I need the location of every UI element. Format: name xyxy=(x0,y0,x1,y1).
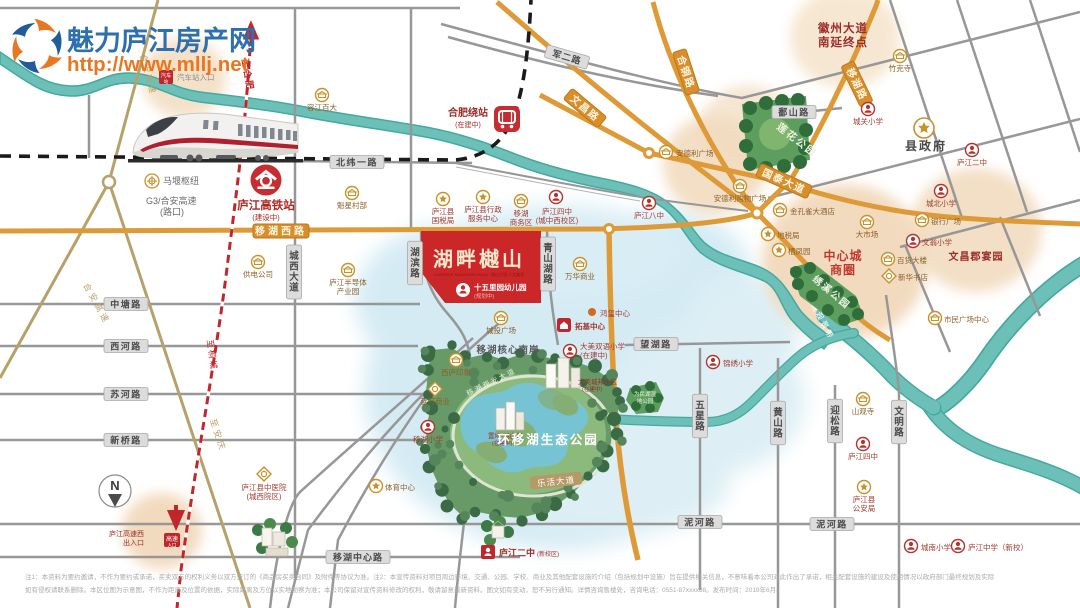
svg-text:(城中西校区): (城中西校区) xyxy=(536,215,579,225)
svg-text:城西大道: 城西大道 xyxy=(289,250,299,294)
svg-text:大市场: 大市场 xyxy=(856,229,879,239)
svg-text:大美双语小学: 大美双语小学 xyxy=(580,341,625,351)
svg-text:国税局: 国税局 xyxy=(432,215,455,225)
svg-text:徽州大道: 徽州大道 xyxy=(817,21,868,35)
svg-text:望湖路: 望湖路 xyxy=(640,338,672,349)
svg-text:安德利广场: 安德利广场 xyxy=(676,148,714,158)
svg-text:为民湖湿: 为民湖湿 xyxy=(634,390,657,398)
svg-text:(规划中): (规划中) xyxy=(474,292,494,300)
svg-text:庐江四中: 庐江四中 xyxy=(848,451,878,461)
svg-text:庐江二中: 庐江二中 xyxy=(499,547,535,558)
svg-text:马堰枢纽: 马堰枢纽 xyxy=(163,175,199,186)
svg-text:金孔雀大酒店: 金孔雀大酒店 xyxy=(790,206,835,216)
svg-text:竹克寺: 竹克寺 xyxy=(889,63,912,73)
svg-text:站: 站 xyxy=(164,78,169,85)
svg-text:G3/合安高速: G3/合安高速 xyxy=(146,195,197,206)
svg-text:商圈: 商圈 xyxy=(830,262,856,277)
svg-text:庐江高速西: 庐江高速西 xyxy=(109,529,144,538)
svg-text:(在建中): (在建中) xyxy=(455,120,481,129)
svg-text:文明路: 文明路 xyxy=(893,405,904,438)
svg-text:黄山路: 黄山路 xyxy=(773,406,783,439)
svg-text:体育中心: 体育中心 xyxy=(385,482,415,492)
svg-text:庐江八中: 庐江八中 xyxy=(634,210,664,220)
svg-text:庐江半导体: 庐江半导体 xyxy=(329,277,367,287)
svg-text:湖畔樾山: 湖畔樾山 xyxy=(433,247,525,271)
svg-text:移湖中心路: 移湖中心路 xyxy=(333,551,383,562)
svg-text:产业园: 产业园 xyxy=(337,286,360,296)
svg-text:出入口: 出入口 xyxy=(123,538,144,547)
svg-text:拓基中心: 拓基中心 xyxy=(575,321,605,331)
svg-text:移湖西路: 移湖西路 xyxy=(255,225,307,238)
svg-text:环移湖生态公园: 环移湖生态公园 xyxy=(497,432,599,447)
svg-text:迎松路: 迎松路 xyxy=(830,404,840,437)
svg-text:LAKESIDE MOUNTAIN VILLA · 湖山大境: LAKESIDE MOUNTAIN VILLA · 湖山大境 人文美学 xyxy=(434,271,524,277)
svg-text:大美城邦小区: 大美城邦小区 xyxy=(578,377,618,386)
svg-text:锦绣小学: 锦绣小学 xyxy=(723,358,753,368)
svg-text:青山湖路: 青山湖路 xyxy=(543,242,553,286)
svg-text:供电公司: 供电公司 xyxy=(243,269,273,279)
svg-text:庐江县: 庐江县 xyxy=(853,494,876,504)
svg-text:(城西院区): (城西院区) xyxy=(247,491,282,501)
svg-text:蓝万商业: 蓝万商业 xyxy=(420,396,450,406)
svg-text:容江百大: 容江百大 xyxy=(307,102,337,112)
svg-text:新桥路: 新桥路 xyxy=(110,434,142,445)
svg-text:注1：本资料为要约邀请，不作为要约或承诺，买卖双方的权利义务: 注1：本资料为要约邀请，不作为要约或承诺，买卖双方的权利义务以双方签订的《商品房… xyxy=(25,572,995,581)
svg-text:地税局: 地税局 xyxy=(777,230,800,240)
svg-text:城南小学: 城南小学 xyxy=(921,542,951,552)
svg-text:商务区: 商务区 xyxy=(510,217,533,227)
svg-text:百货大楼: 百货大楼 xyxy=(897,255,927,265)
svg-text:合肥绕站: 合肥绕站 xyxy=(447,106,488,119)
svg-text:N: N xyxy=(110,478,119,493)
svg-text:文昌郡宴园: 文昌郡宴园 xyxy=(949,250,1004,263)
svg-text:市民广场中心: 市民广场中心 xyxy=(944,314,989,324)
svg-text:县政府: 县政府 xyxy=(905,138,947,153)
svg-text:山观寺: 山观寺 xyxy=(852,406,875,416)
svg-text:安德利购物广场: 安德利购物广场 xyxy=(714,193,767,203)
svg-text:湖滨路: 湖滨路 xyxy=(410,246,420,279)
svg-text:(路口): (路口) xyxy=(160,206,184,217)
svg-text:新华书店: 新华书店 xyxy=(898,272,928,282)
svg-text:(建设中): (建设中) xyxy=(252,212,280,222)
svg-text:城投广场: 城投广场 xyxy=(486,325,516,335)
svg-text:庐江中学（新校）: 庐江中学（新校） xyxy=(968,542,1028,552)
svg-text:鄱山路: 鄱山路 xyxy=(777,106,810,117)
svg-text:十五里园幼儿园: 十五里园幼儿园 xyxy=(474,282,527,292)
svg-text:庐江县行政: 庐江县行政 xyxy=(464,204,502,214)
svg-text:万华商业: 万华商业 xyxy=(565,271,595,281)
svg-text:五星路: 五星路 xyxy=(695,400,705,432)
svg-text:http://www.mllj.net: http://www.mllj.net xyxy=(67,53,249,76)
svg-text:庐江县中医院: 庐江县中医院 xyxy=(242,482,287,492)
svg-text:中塘路: 中塘路 xyxy=(110,298,142,309)
svg-text:栖凤园: 栖凤园 xyxy=(788,246,811,256)
svg-text:苏河路: 苏河路 xyxy=(110,388,142,399)
svg-text:移湖: 移湖 xyxy=(514,208,529,218)
svg-text:南延终点: 南延终点 xyxy=(818,35,868,49)
svg-text:如有侵权请联系删除。本区位图为示意图，不作为距离及位置的依据: 如有侵权请联系删除。本区位图为示意图，不作为距离及位置的依据，实际距离及方位以实… xyxy=(25,585,783,594)
svg-text:中心城: 中心城 xyxy=(823,248,862,263)
svg-text:(新校区): (新校区) xyxy=(537,550,559,558)
svg-text:庐江四中: 庐江四中 xyxy=(542,206,572,216)
svg-text:文翁小学: 文翁小学 xyxy=(922,237,952,247)
svg-text:移湖核心南岸: 移湖核心南岸 xyxy=(476,344,539,356)
svg-text:庐江二中: 庐江二中 xyxy=(957,157,987,167)
svg-text:服务中心: 服务中心 xyxy=(468,213,498,223)
svg-text:(在建中): (在建中) xyxy=(580,350,608,360)
svg-text:泥河路: 泥河路 xyxy=(684,516,716,527)
svg-text:庐江高铁站: 庐江高铁站 xyxy=(237,198,295,212)
svg-text:银行广场: 银行广场 xyxy=(931,216,961,226)
svg-text:地公园: 地公园 xyxy=(637,397,654,405)
svg-text:庐江县: 庐江县 xyxy=(432,206,455,216)
svg-text:泥河路: 泥河路 xyxy=(816,518,848,529)
svg-text:城北小学: 城北小学 xyxy=(926,198,956,208)
svg-text:公安局: 公安局 xyxy=(853,503,876,513)
svg-text:移湖小学: 移湖小学 xyxy=(413,434,443,444)
svg-text:北纬一路: 北纬一路 xyxy=(336,156,378,167)
svg-text:鸿玺中心: 鸿玺中心 xyxy=(600,308,630,318)
svg-text:魅力庐江房产网: 魅力庐江房产网 xyxy=(67,25,256,56)
svg-text:西河路: 西河路 xyxy=(110,340,142,351)
svg-text:魁星村部: 魁星村部 xyxy=(337,200,367,210)
svg-text:城关小学: 城关小学 xyxy=(853,116,883,126)
svg-text:(在建中): (在建中) xyxy=(582,385,602,393)
svg-text:西庐印象: 西庐印象 xyxy=(441,367,471,377)
